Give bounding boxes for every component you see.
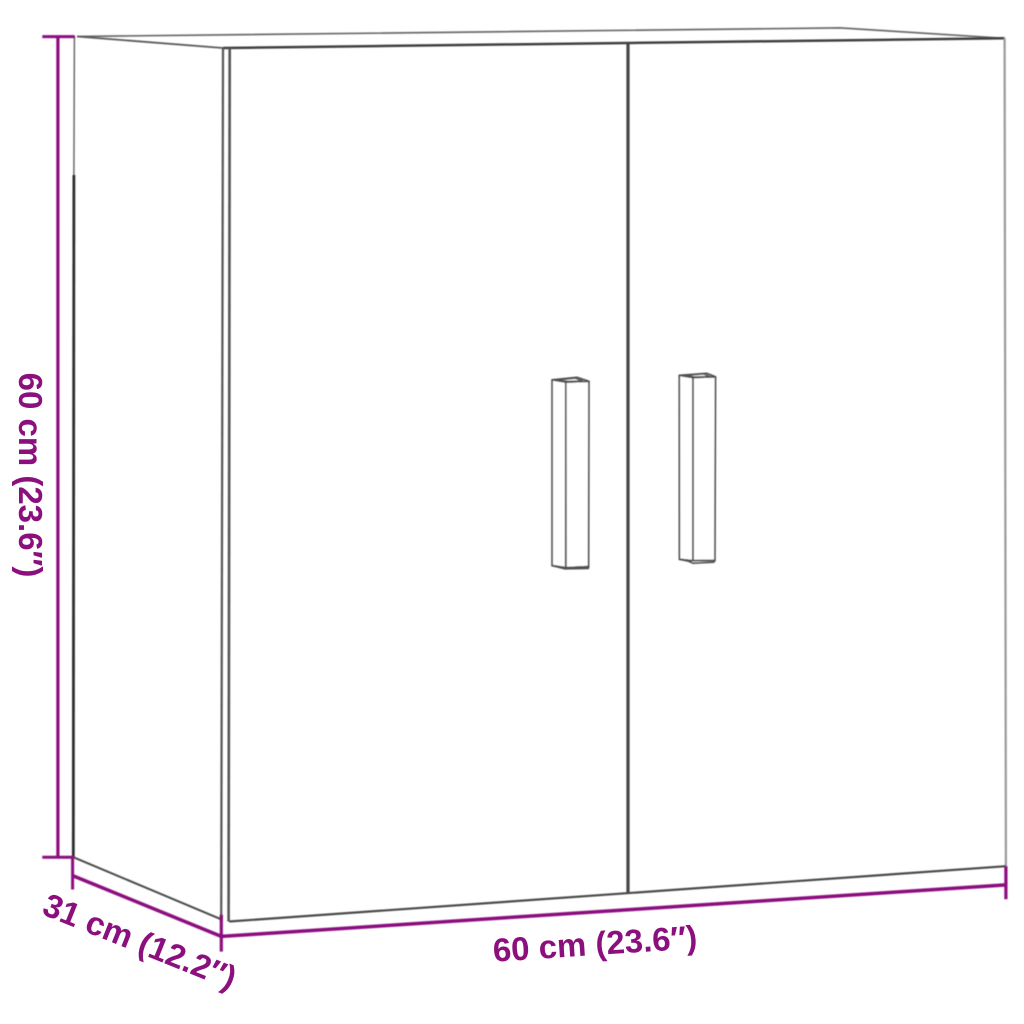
svg-text:60 cm (23.6″): 60 cm (23.6″) [12,373,49,578]
svg-text:60 cm (23.6″): 60 cm (23.6″) [492,918,699,968]
